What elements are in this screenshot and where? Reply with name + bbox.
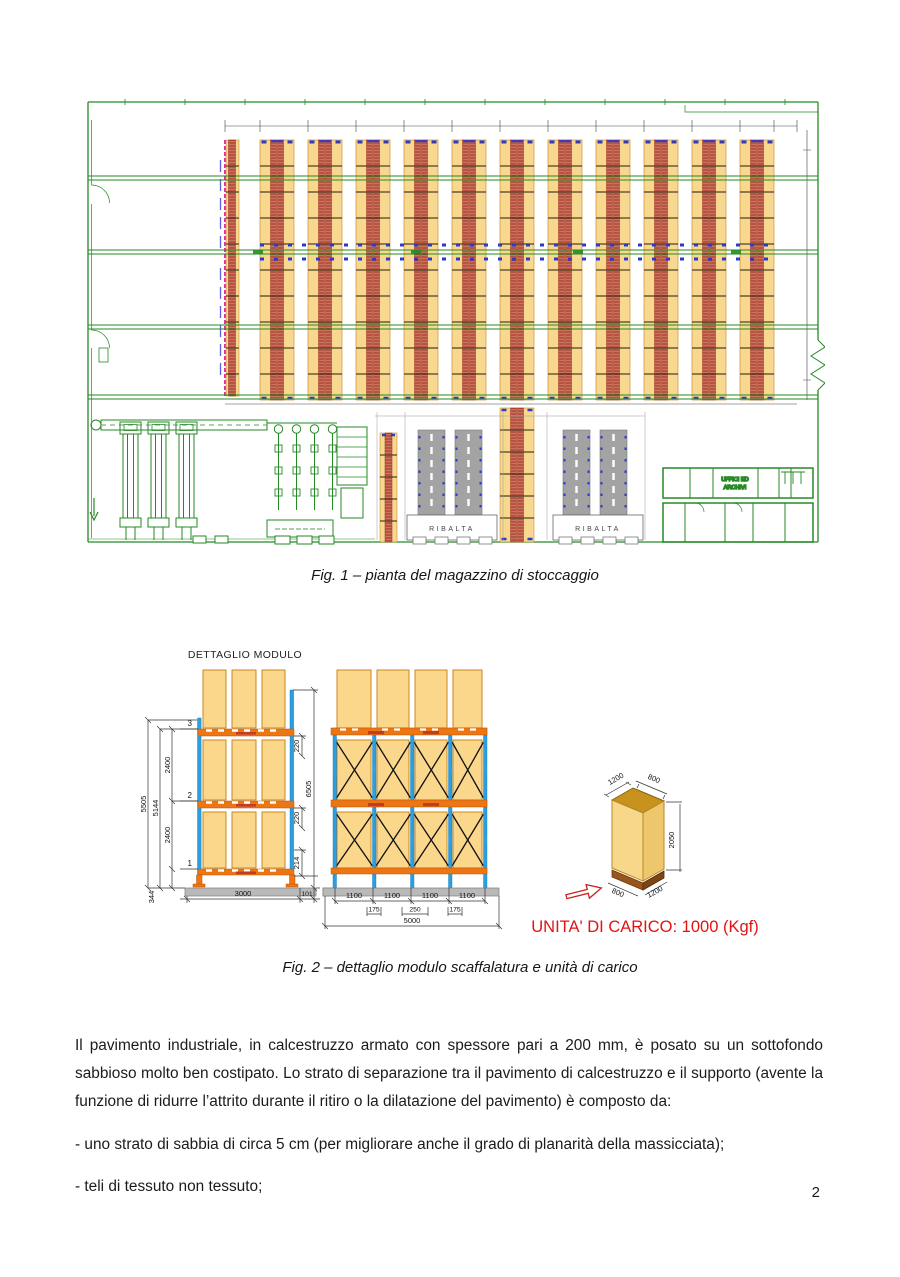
ribalta-zone-1: RIBALTA [407,515,497,544]
dim-side-offset: 101 [301,891,313,898]
ribalta-zone-2: RIBALTA [553,515,643,544]
body-text: Il pavimento industriale, in calcestruzz… [75,1032,823,1199]
side-dims-right: 220 220 214 6505 [292,687,320,891]
document-page: { "page": { "number": "2" }, "fig1": { "… [0,0,900,1277]
dim-overall-height: 5505 [140,796,148,813]
dim-top-clearance: 220 [292,740,301,753]
rack-columns [221,140,775,400]
rack-column-first [221,140,240,396]
level-2-number: 2 [188,791,193,800]
fig1-caption: Fig. 1 – pianta del magazzino di stoccag… [85,567,825,584]
figure1-plan: RIBALTA RIBALTA [85,90,825,557]
offices-area: UFFICI ED ARCHIVI [663,468,813,542]
level-1-number: 1 [188,859,193,868]
offices-label-line1: UFFICI ED [721,477,748,483]
level-markers: 3 2 1 [180,719,198,869]
dim-spacing-2: 250 [409,907,421,914]
dim-base-width: 800 [610,886,625,899]
pallet-loads-side [203,670,285,868]
dim-module-width: 3000 [235,889,252,898]
figure2-drawing: DETTAGLIO MODULO [140,645,780,955]
ribalta-label-2: RIBALTA [575,526,621,533]
dim-top-beam-height: 5144 [151,800,160,817]
pallet-loads-front [337,670,482,868]
dim-top-width: 800 [646,772,661,785]
machinery-area [90,420,367,544]
bullet-sand-layer: - uno strato di sabbia di circa 5 cm (pe… [75,1133,823,1157]
dim-top-depth: 1200 [606,771,625,787]
front-elevation: 1100 1100 1100 1100 175 250 175 5000 [322,670,502,929]
dim-spacing-3: 175 [449,907,461,914]
dim-first-beam-height: 214 [292,857,301,870]
unit-load-arrow-icon [565,881,603,903]
dim-height: 2050 [667,832,676,849]
ribalta-label-1: RIBALTA [429,526,475,533]
page-number: 2 [75,1184,820,1201]
base-and-floor-side [185,875,336,896]
unit-load-label: UNITA' DI CARICO: 1000 (Kgf) [531,918,758,936]
fig2-caption: Fig. 2 – dettaglio modulo scaffalatura e… [85,959,835,976]
upright-right [290,690,294,878]
unit-load: 1200 800 2050 800 1200 UNITA' DI CARICO:… [531,771,758,936]
offices-label-line2: ARCHIVI [724,485,747,491]
dim-bay-2: 1100 [384,891,400,900]
dim-bay-3: 1100 [422,891,438,900]
dim-total-width: 5000 [404,916,421,925]
unit-load-left-face [612,800,643,881]
module-detail-title: DETTAGLIO MODULO [188,649,302,661]
warehouse-plan-drawing: RIBALTA RIBALTA [85,90,825,552]
dim-bay-1: 1100 [346,891,362,900]
upright-left [198,718,202,878]
module-detail-drawing: DETTAGLIO MODULO [140,645,780,950]
dim-upright-total: 6505 [304,781,313,798]
unit-load-right-face [643,801,664,881]
side-dims-left: 5505 5144 2400 2400 344 [140,717,198,903]
dim-spacing-1: 175 [368,907,380,914]
paragraph-flooring: Il pavimento industriale, in calcestruzz… [75,1032,823,1116]
dim-base-height: 344 [147,891,156,904]
dim-mid-clearance: 220 [292,812,301,825]
dim-level-spacing-upper: 2400 [163,757,172,774]
dim-level-spacing-lower: 2400 [163,827,172,844]
dim-bay-4: 1100 [459,891,475,900]
lower-rack-strip-2 [500,408,534,542]
side-elevation: 3 2 1 5505 5144 2400 2400 344 220 220 21… [140,670,336,903]
lower-rack-strip-1 [380,433,397,542]
